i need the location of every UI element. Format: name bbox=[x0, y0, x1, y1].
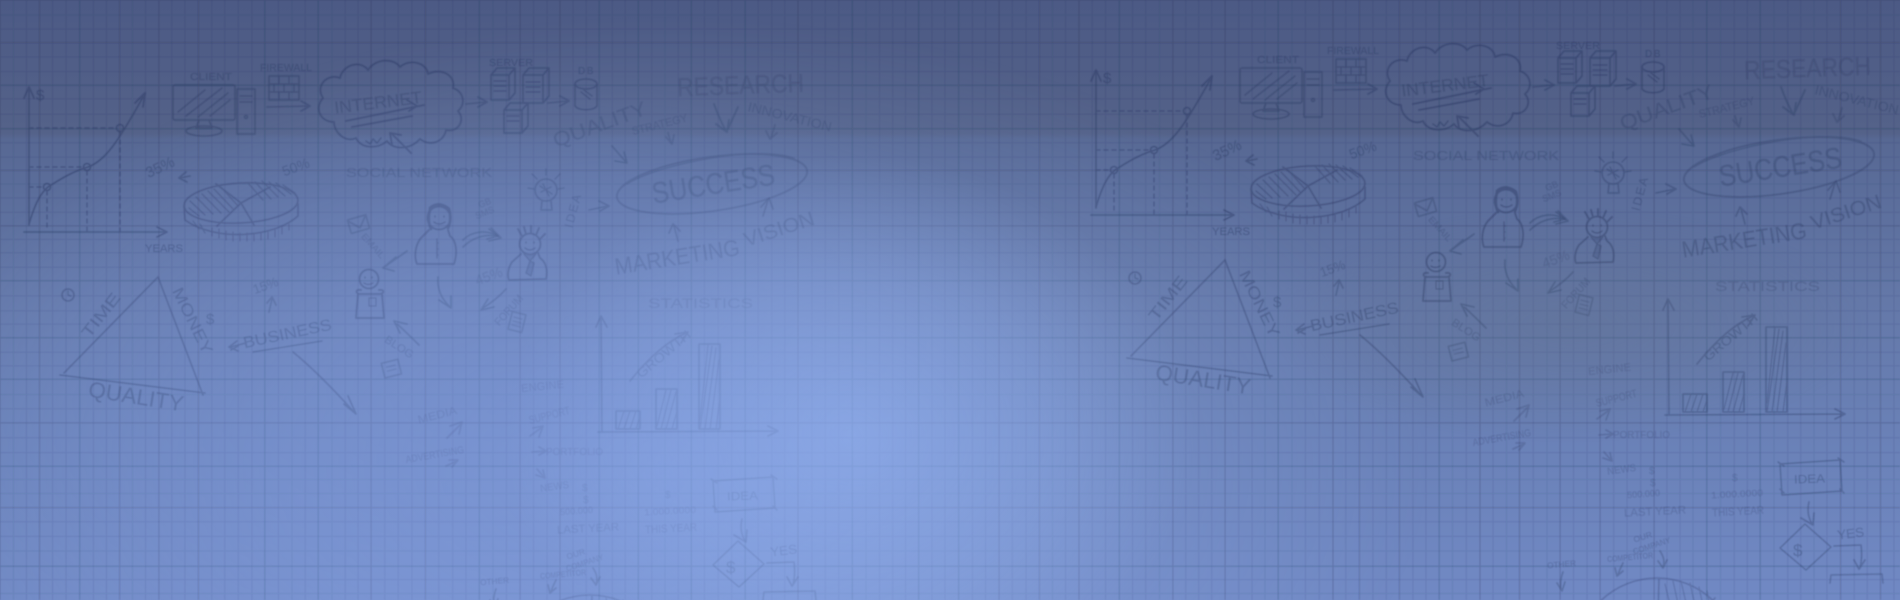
svg-text:CLIENT: CLIENT bbox=[190, 72, 232, 83]
svg-text:$: $ bbox=[36, 87, 45, 104]
